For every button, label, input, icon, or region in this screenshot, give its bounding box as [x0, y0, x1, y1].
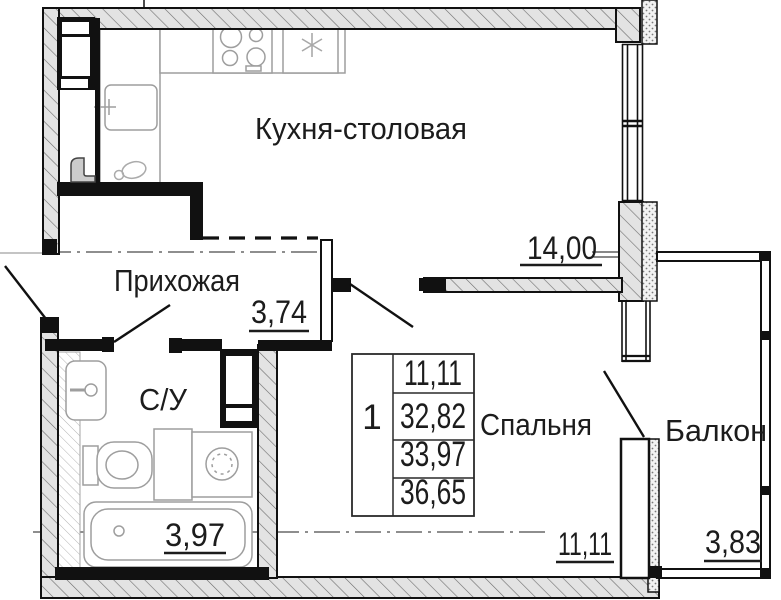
room-label-hallway: Прихожая [114, 263, 240, 298]
washing-machine-drum-inner [212, 454, 232, 474]
bath-cabinet [154, 429, 192, 500]
insulation-mid [642, 202, 657, 301]
glazing-tick [761, 331, 770, 340]
wall-top-right-corner [616, 8, 640, 42]
bedroom-area: 11,11 [558, 526, 612, 562]
ventilation-shaft-kitchen-icon [57, 17, 95, 90]
wall-left-upper [43, 8, 59, 254]
entry-door-jamb-bottom [41, 317, 57, 333]
entry-door-jamb-top [42, 239, 57, 254]
glazing-tick [761, 486, 770, 495]
room-label-kitchen: Кухня-столовая [255, 111, 467, 146]
wall-left-lower [41, 318, 58, 598]
stove-burner [223, 51, 238, 66]
summary-rooms-count: 1 [362, 398, 381, 437]
fridge-icon [283, 26, 338, 73]
room-label-bedroom: Спальня [480, 407, 592, 442]
wall-bath-bottom [55, 567, 269, 580]
bathroom-area: 3,97 [165, 517, 225, 553]
hallway-area: 3,74 [251, 294, 307, 330]
glazing-tick [648, 566, 662, 578]
insulation-top [642, 0, 657, 44]
room-label-balcony: Балкон [665, 413, 767, 448]
balcony-wall-top [657, 252, 770, 261]
balcony-door-panel [621, 439, 649, 578]
bath-door-jamb-left [102, 337, 114, 352]
wall-kitchen-bedroom [424, 278, 622, 292]
stove-vent [246, 66, 261, 71]
wall-hallway-right [321, 240, 332, 341]
area-summary-table: 1 11,11 32,82 33,97 36,65 [352, 354, 474, 516]
stove-burner [247, 48, 265, 66]
bedroom-door-stub-right [419, 278, 446, 291]
wall-top [43, 8, 638, 29]
balcony-area: 3,83 [705, 524, 761, 560]
balcony-wall-bottom [657, 569, 770, 578]
room-label-bathroom: С/У [139, 382, 187, 417]
wall-kitchen-hall-h [57, 182, 203, 196]
floor-plan: 1 11,11 32,82 33,97 36,65 Кухня-столовая… [0, 0, 781, 600]
summary-value-1: 11,11 [404, 354, 462, 393]
toilet-tank [83, 446, 98, 485]
wall-bath-top-b [180, 339, 222, 351]
floor-plan-page: 1 11,11 32,82 33,97 36,65 Кухня-столовая… [0, 0, 781, 600]
ventilation-shaft-bathroom-icon [220, 349, 258, 428]
summary-value-3: 33,97 [400, 435, 466, 474]
wall-bathroom-bedroom [258, 345, 277, 578]
bedroom-door-stub-left [330, 278, 351, 292]
wall-kitchen-hall-v [190, 182, 203, 240]
bathtub-drain [114, 526, 124, 536]
summary-value-2: 32,82 [400, 397, 466, 436]
kitchen-area: 14,00 [527, 230, 597, 266]
bath-sink-faucet-knob [85, 384, 97, 396]
wall-bath-top-a [45, 339, 105, 351]
glazing-tick [759, 252, 770, 261]
glazing-tick [760, 569, 770, 578]
summary-value-4: 36,65 [400, 473, 466, 512]
toilet-bowl [106, 451, 138, 479]
wall-bottom [41, 577, 659, 598]
wall-kitchen-shaft [95, 18, 100, 190]
stove-burner [250, 29, 263, 42]
